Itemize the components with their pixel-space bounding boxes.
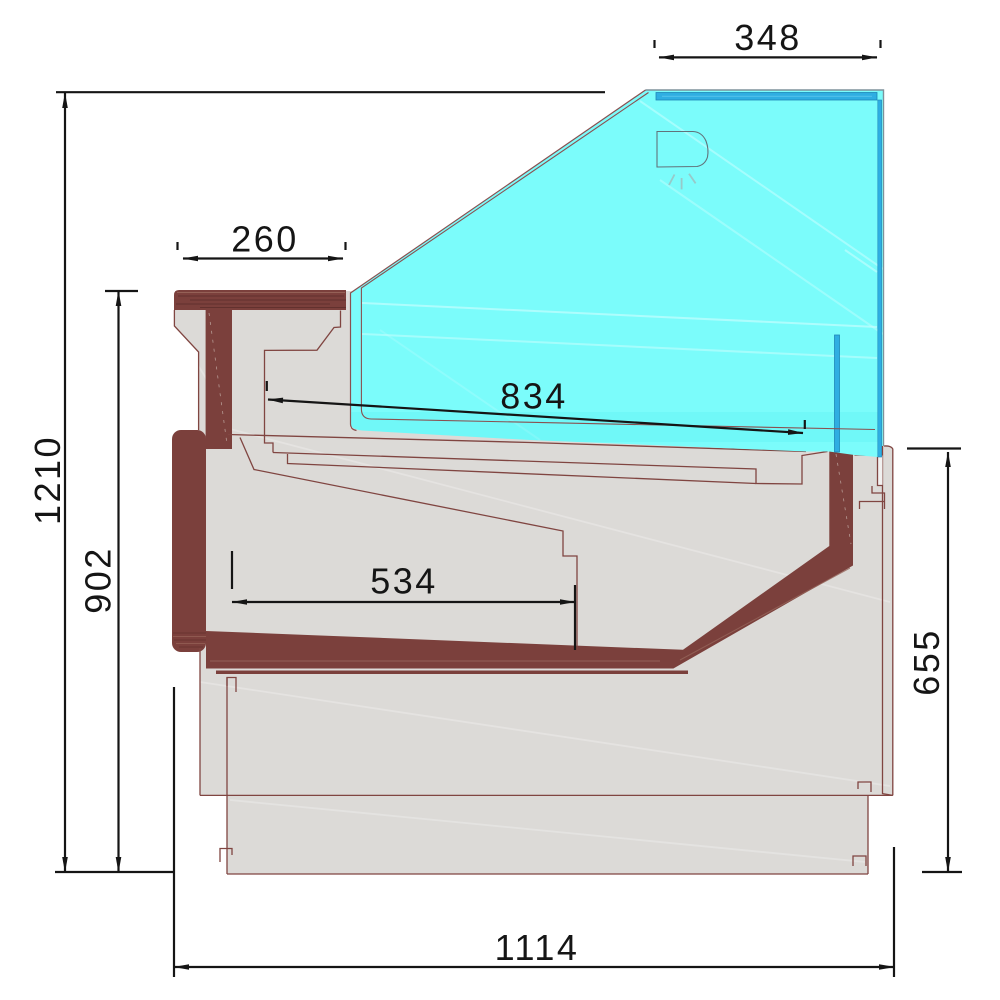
svg-text:1210: 1210 xyxy=(27,435,68,525)
svg-text:834: 834 xyxy=(500,376,568,417)
svg-text:534: 534 xyxy=(370,561,438,602)
svg-text:655: 655 xyxy=(906,628,947,696)
svg-text:1114: 1114 xyxy=(495,927,580,968)
svg-text:902: 902 xyxy=(78,546,119,614)
svg-text:260: 260 xyxy=(231,219,299,260)
svg-text:348: 348 xyxy=(734,17,802,58)
